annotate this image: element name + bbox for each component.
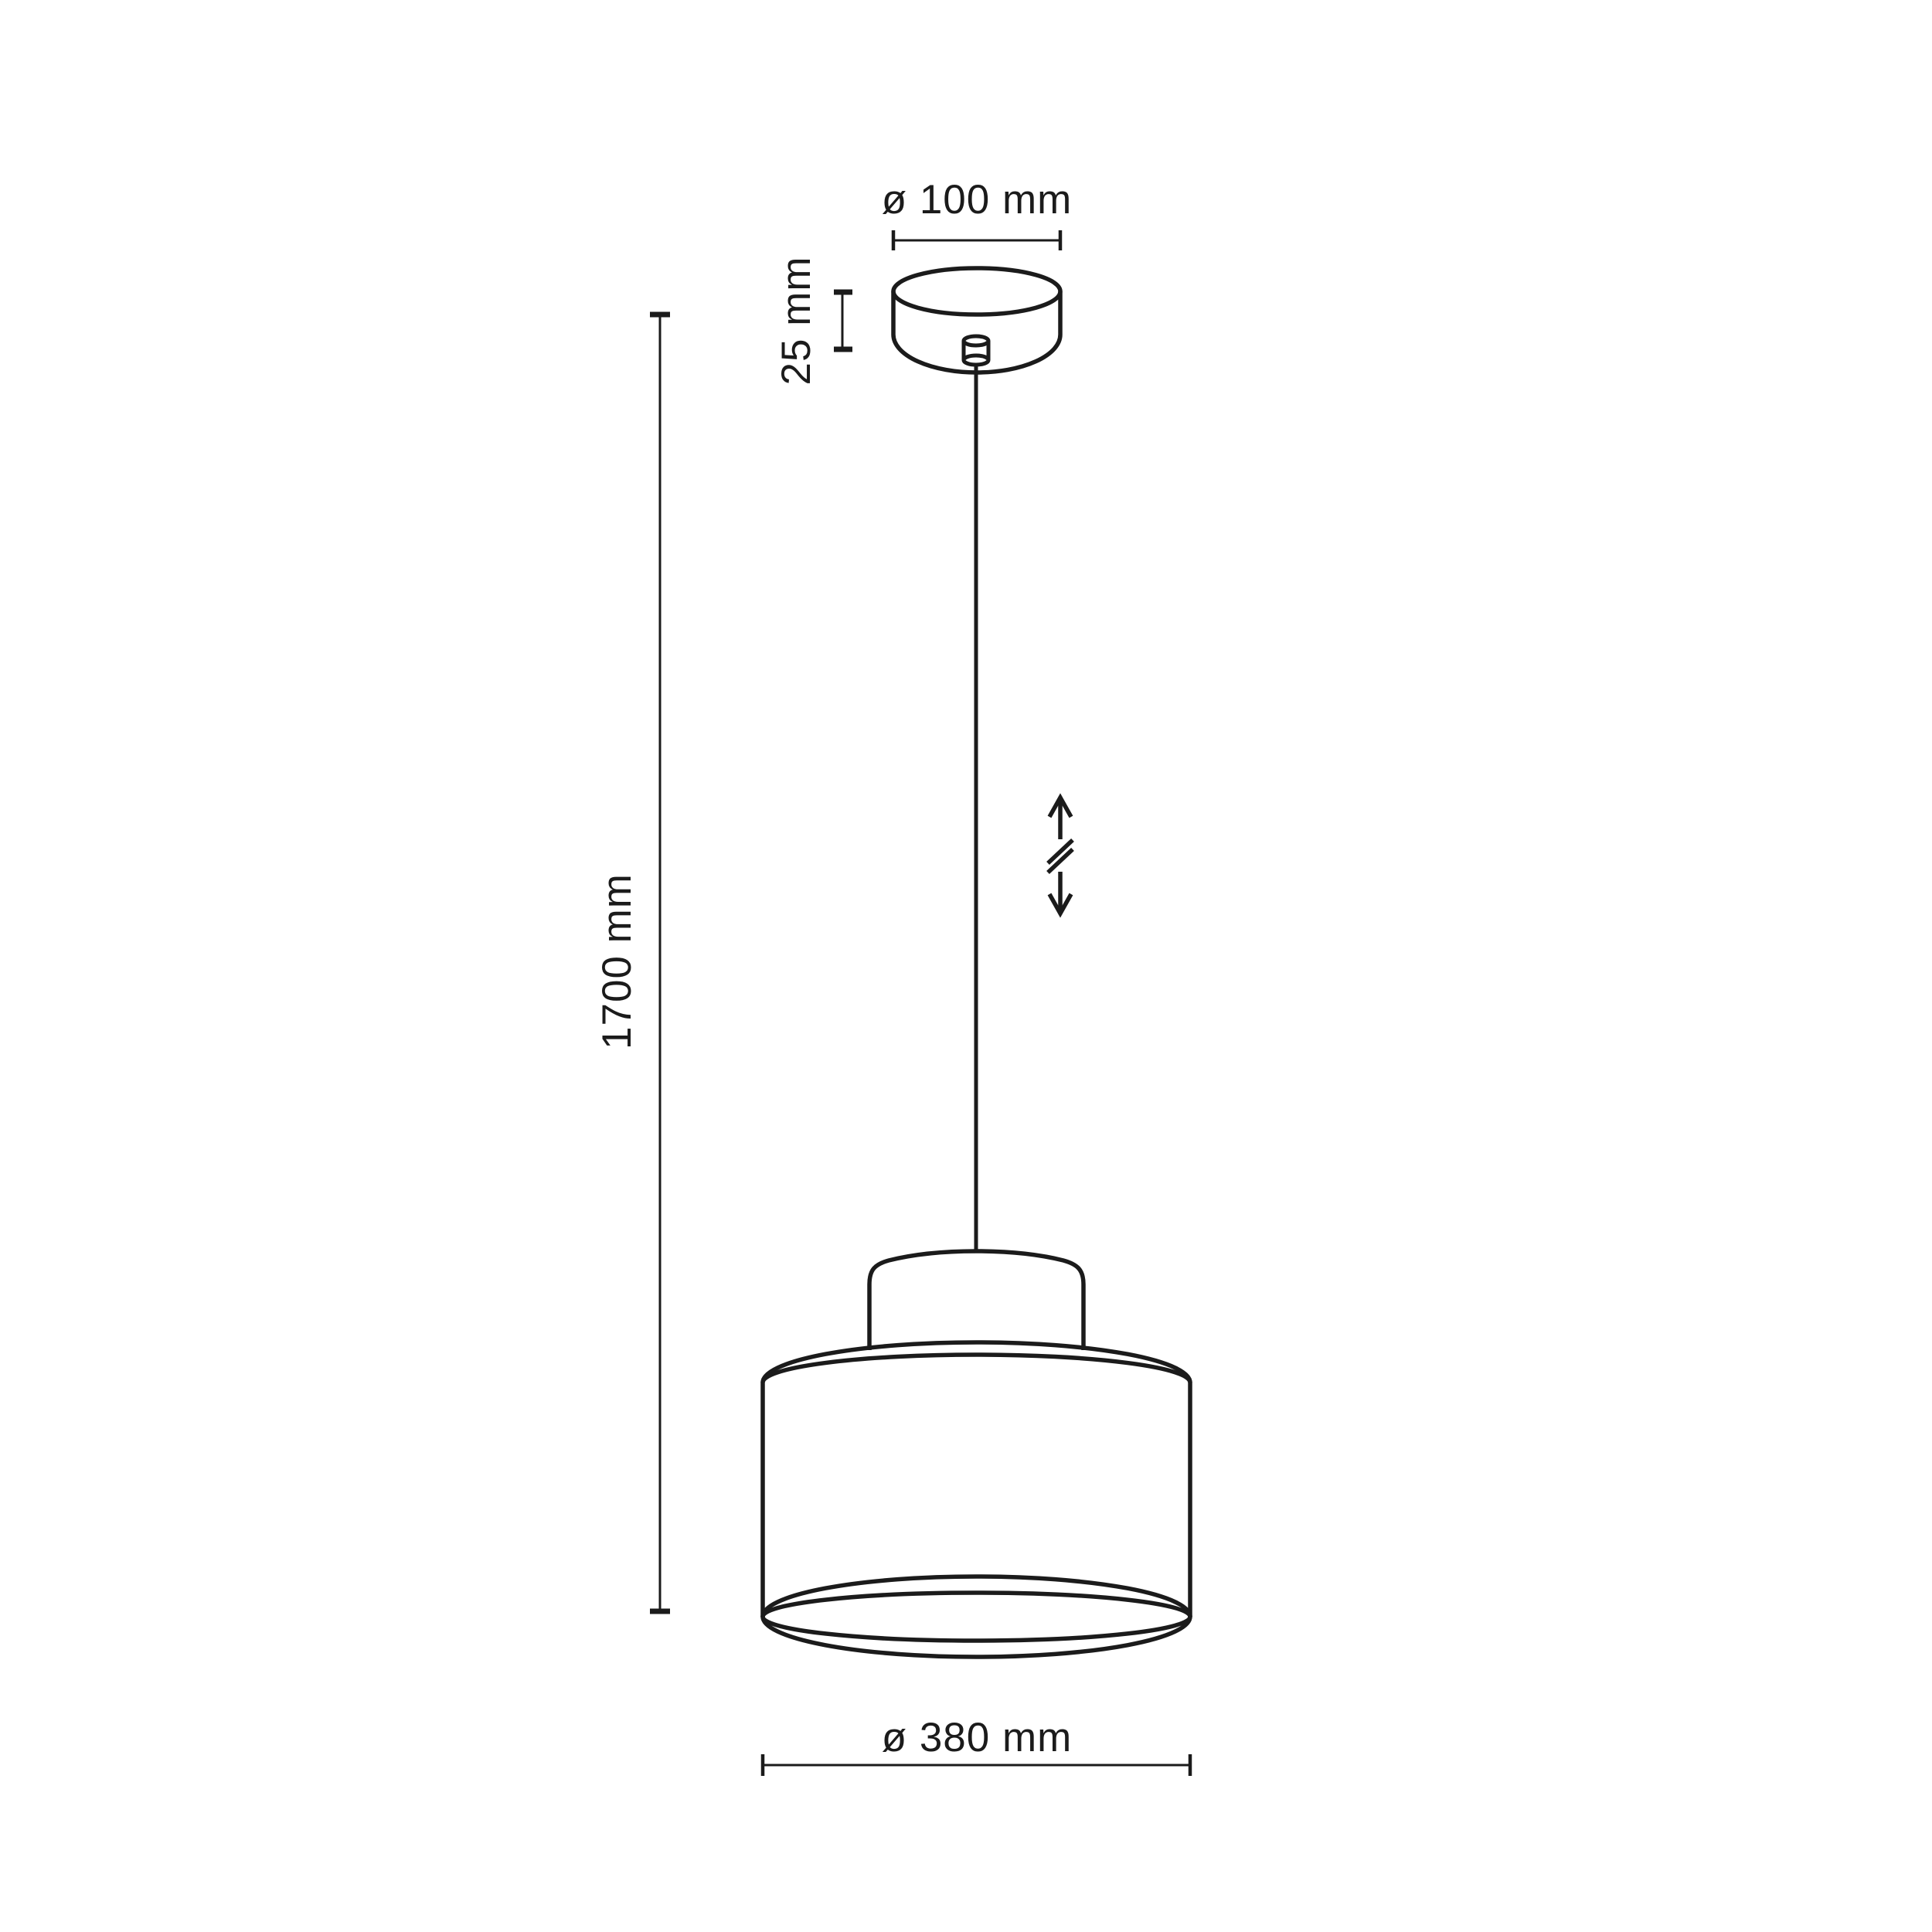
cord-grip	[964, 336, 988, 365]
shade-bottom-rim-outer-ellipse	[763, 1577, 1190, 1657]
canopy-diameter-label: ø 100 mm	[882, 177, 1073, 223]
cord-grip-bottom-ellipse	[964, 355, 988, 365]
dim-canopy-diameter: ø 100 mm	[882, 177, 1073, 250]
pendant-lamp	[763, 1251, 1190, 1657]
shade-bottom-rim-inner-ellipse	[763, 1593, 1190, 1641]
dim-shade-diameter: ø 380 mm	[763, 1715, 1190, 1776]
dim-canopy-height: 25 mm	[774, 257, 852, 386]
canopy-top-ellipse	[893, 268, 1060, 315]
cord-grip-top-ellipse	[964, 336, 988, 345]
dim-total-height: 1700 mm	[594, 315, 670, 1611]
shade-diameter-label: ø 380 mm	[882, 1715, 1073, 1760]
adjustable-height-icon	[1048, 798, 1073, 913]
ceiling-canopy	[893, 268, 1060, 372]
total-height-label: 1700 mm	[594, 873, 640, 1049]
shade-top-rim-inner-arc	[763, 1355, 1190, 1383]
socket-cylinder	[869, 1251, 1083, 1350]
pendant-lamp-dimension-diagram: ø 100 mm 25 mm 1700 mm	[0, 0, 1932, 1932]
canopy-height-label: 25 mm	[774, 257, 819, 386]
